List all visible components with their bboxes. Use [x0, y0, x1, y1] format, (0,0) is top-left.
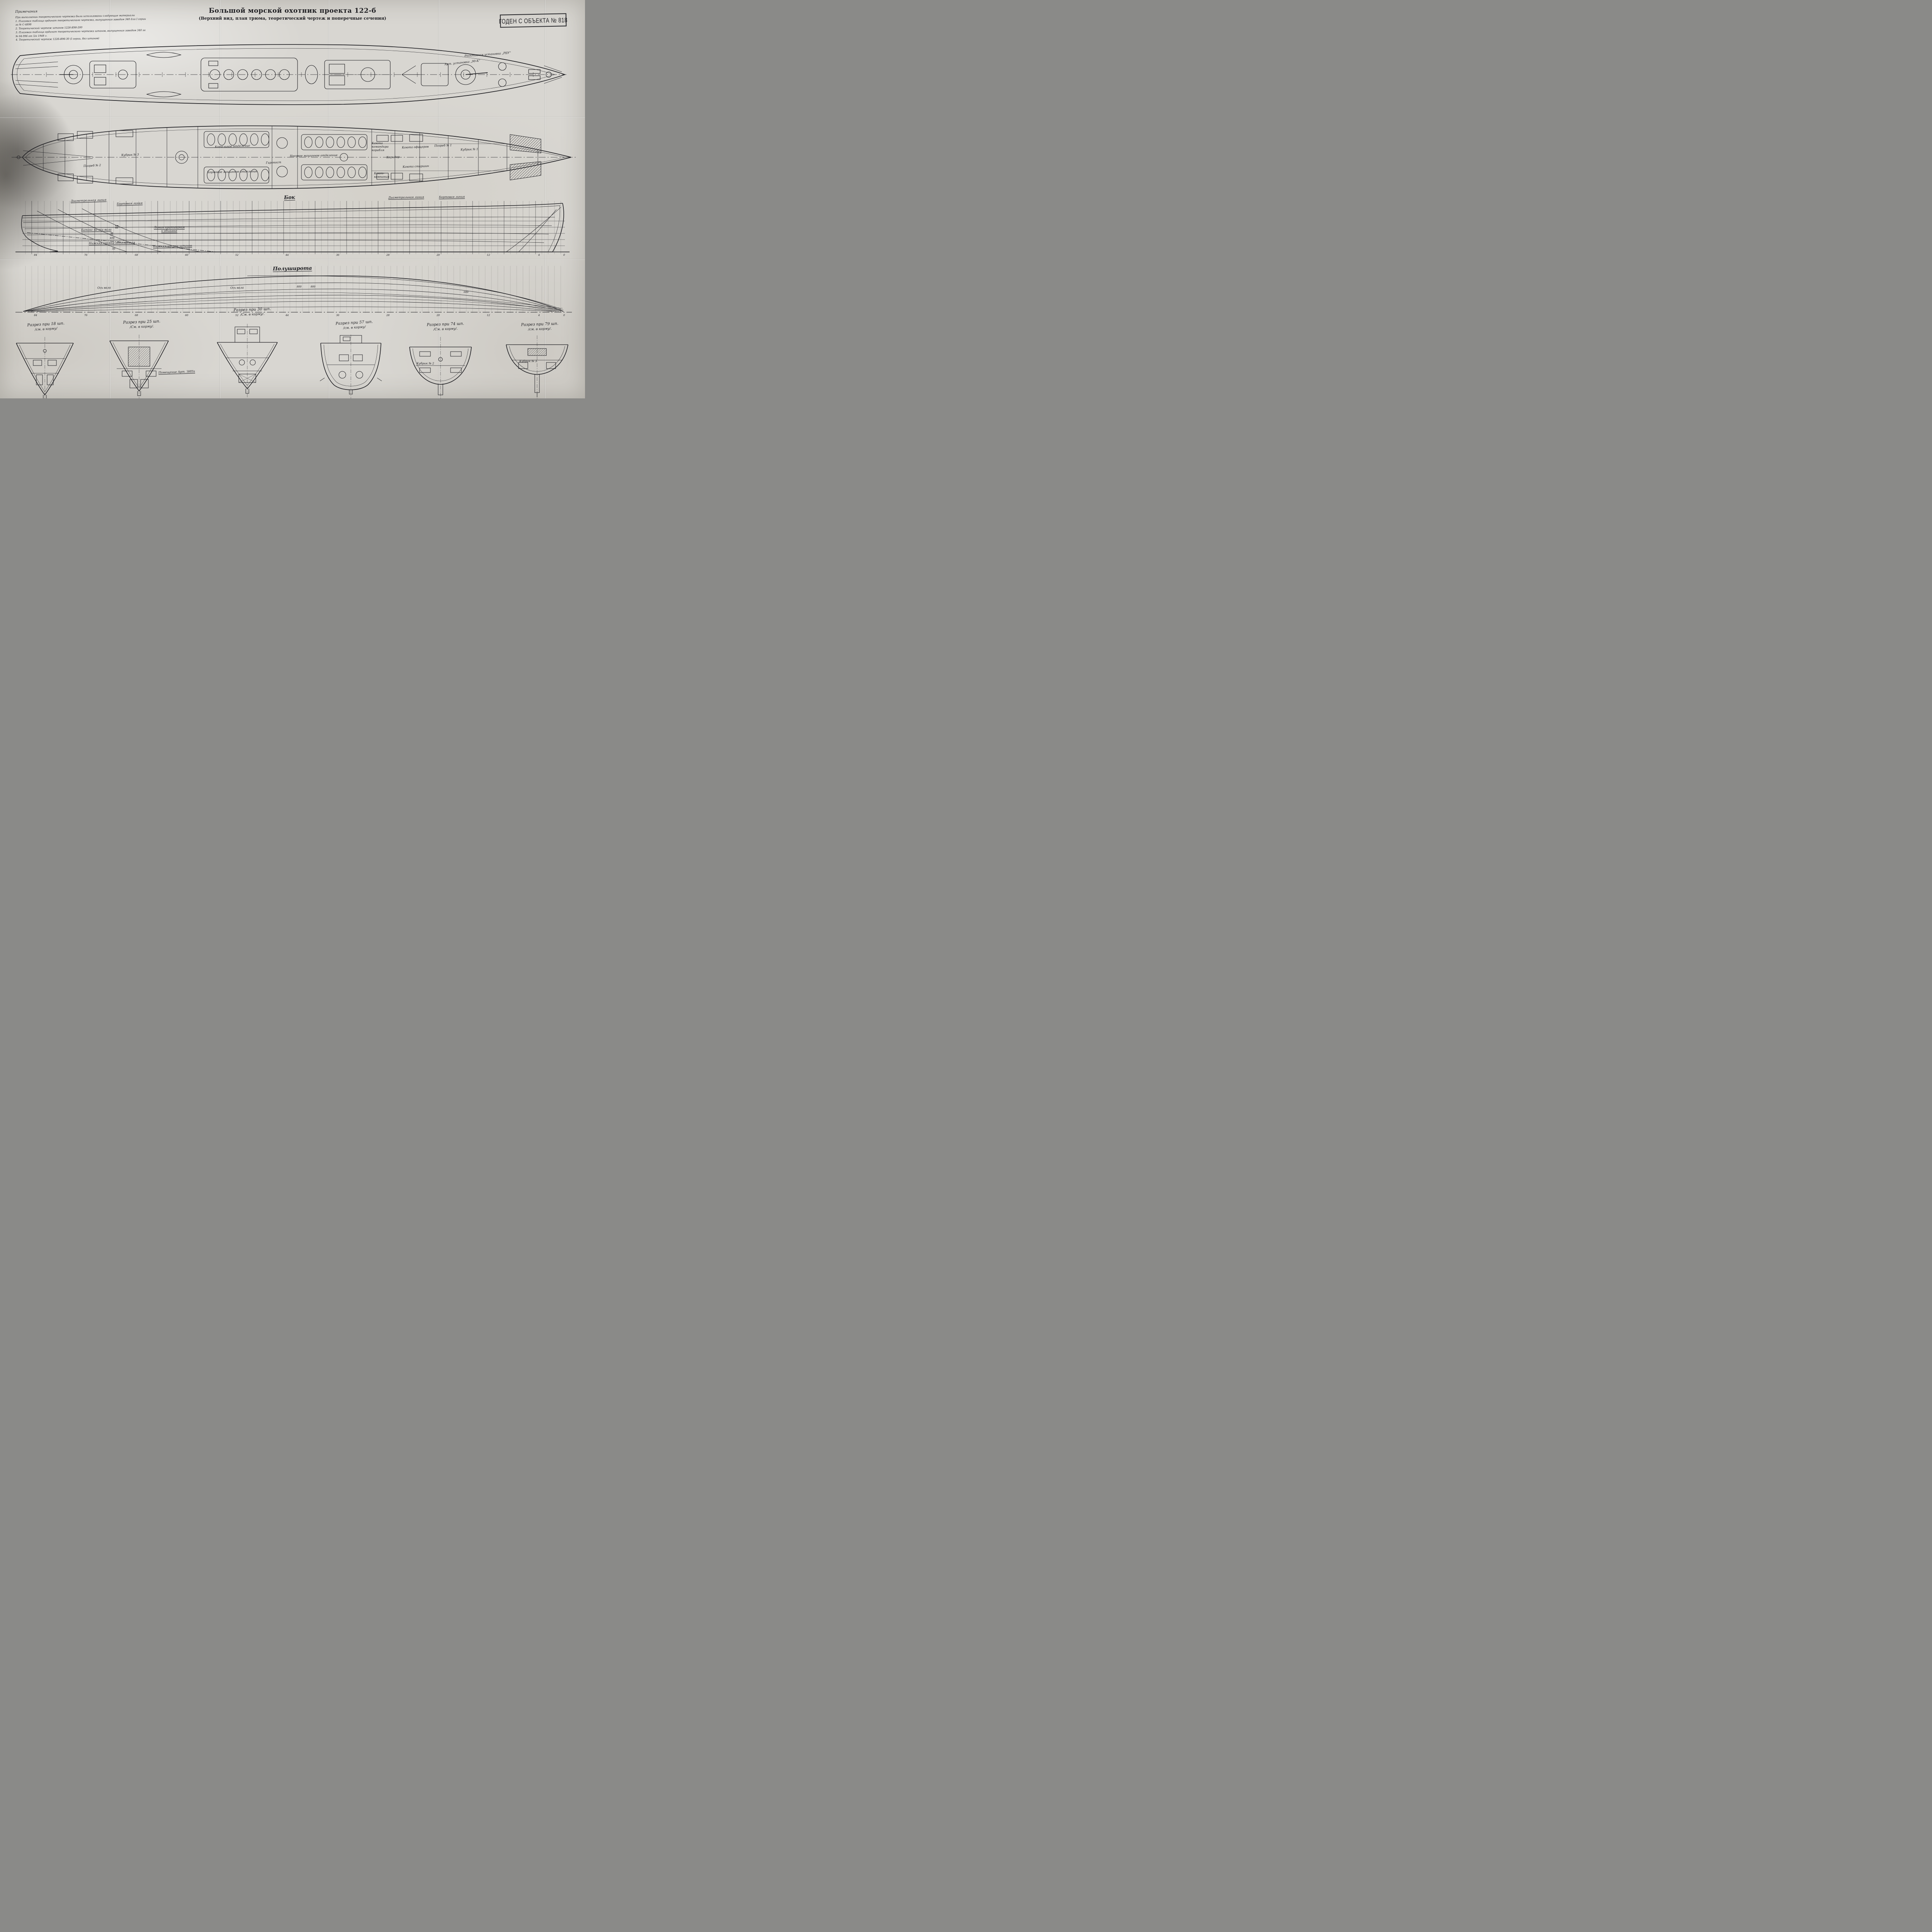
wardroom-label: Кают-компания: [374, 172, 398, 179]
section-74-interior-label: Кубрик № 2: [417, 362, 434, 365]
frame-number: 52: [233, 253, 241, 257]
frame-number: 12: [485, 314, 492, 317]
section-79-interior-label: Кубрик № 3: [519, 359, 537, 363]
dim-800-b: 800: [311, 285, 315, 288]
title-block: Большой морской охотник проекта 122-б (В…: [111, 7, 474, 21]
frame-number: 4: [535, 314, 543, 317]
section-18-caption: Разрез при 18 шп. /см. в корму/: [17, 321, 75, 333]
shaft-axis-label-left: Ось вала: [97, 286, 111, 290]
kubrick1-label: Кубрик № 1: [461, 147, 478, 151]
frame-number: 84: [32, 253, 39, 257]
corridor-label: Коридор: [386, 155, 400, 159]
frame-number: 20: [434, 314, 442, 317]
section-25-drawing: [105, 333, 175, 398]
frame-number: 76: [82, 314, 90, 317]
blueprint-sheet: Примечания При выполнении теоретического…: [0, 0, 585, 398]
section-79-drawing: [503, 335, 573, 398]
frame-number: 60: [183, 314, 190, 317]
dim-50: 50: [112, 247, 115, 250]
frame-number: 28: [384, 314, 392, 317]
plating-join-label: Линия притыкания к обшивке: [154, 226, 185, 233]
approval-stamp: ГОДЕН С ОБЪЕКТА № 818: [500, 13, 567, 28]
section-79-caption: Разрез при 79 шп. /см. в корму/.: [511, 321, 569, 332]
shaft-axis-label-mid: Ось вала: [230, 286, 244, 290]
frame-number: 36: [334, 314, 342, 317]
frame-number: 20: [434, 253, 442, 257]
centerline-label-right: Диаметральная линия: [388, 195, 424, 199]
co-cabin-label: Каюта командира корабля: [372, 141, 396, 152]
page-subtitle: (Верхний вид, план трюма, теоретический …: [111, 16, 474, 21]
section-74-drawing: [406, 337, 476, 398]
section-57-caption: Разрез при 57 шп. /см. в корму/: [325, 319, 384, 331]
section-18-drawing: [11, 335, 80, 398]
frame-number: 60: [183, 253, 190, 257]
buttock-ii-mark: П: [111, 233, 113, 236]
dim-400: 400: [110, 236, 114, 240]
page-title: Большой морской охотник проекта 122-б: [111, 7, 474, 15]
section-74-caption: Разрез при 74 шп. /См. в корму/.: [417, 321, 475, 332]
half-breadth-view-label: Полуширота: [273, 265, 312, 272]
approval-stamp-text: ГОДЕН С ОБЪЕКТА № 818: [499, 16, 568, 25]
fold-crease-horizontal: [0, 117, 585, 118]
frame-number: 76: [82, 253, 90, 257]
frame-number: 68: [133, 253, 140, 257]
frame-number: 28: [384, 253, 392, 257]
frame-number: 12: [485, 253, 492, 257]
kubrick3-label: Кубрик № 3: [121, 153, 139, 157]
art-zip-room-label: Помещение Арт. ЗИПа: [158, 369, 195, 374]
frame-number: 44: [283, 314, 291, 317]
buttock-iii-mark: Ш: [115, 226, 119, 229]
frame-number: 0: [560, 253, 568, 257]
frame-number: 44: [283, 253, 291, 257]
section-25-caption: Разрез при 25 шп. /См. в корму/.: [113, 319, 171, 330]
sheer-plan-drawing: [0, 194, 585, 260]
gyro-post-label: Гиропост: [266, 160, 281, 164]
section-30-drawing: [213, 324, 283, 398]
frame-number: 4: [535, 253, 543, 257]
shaft-buttock-label: Батокс по оси вала: [81, 228, 112, 231]
sheer-view-label: Бок: [284, 195, 295, 201]
dim-800-a: 800: [297, 285, 301, 288]
frame-number: 68: [133, 314, 140, 317]
frame-number: 0: [560, 314, 568, 317]
deck-plan-drawing: [0, 32, 585, 117]
magazine1-label: Погреб № 1: [434, 143, 452, 148]
side-line-label-right: Бортовая линия: [439, 195, 465, 199]
frame-number: 84: [32, 314, 39, 317]
dim-600: 600: [464, 291, 468, 294]
section-57-drawing: [317, 335, 386, 398]
shtany-lower-edge-label: Нижняя кромка штанов: [153, 244, 192, 248]
frame-number: 36: [334, 253, 342, 257]
